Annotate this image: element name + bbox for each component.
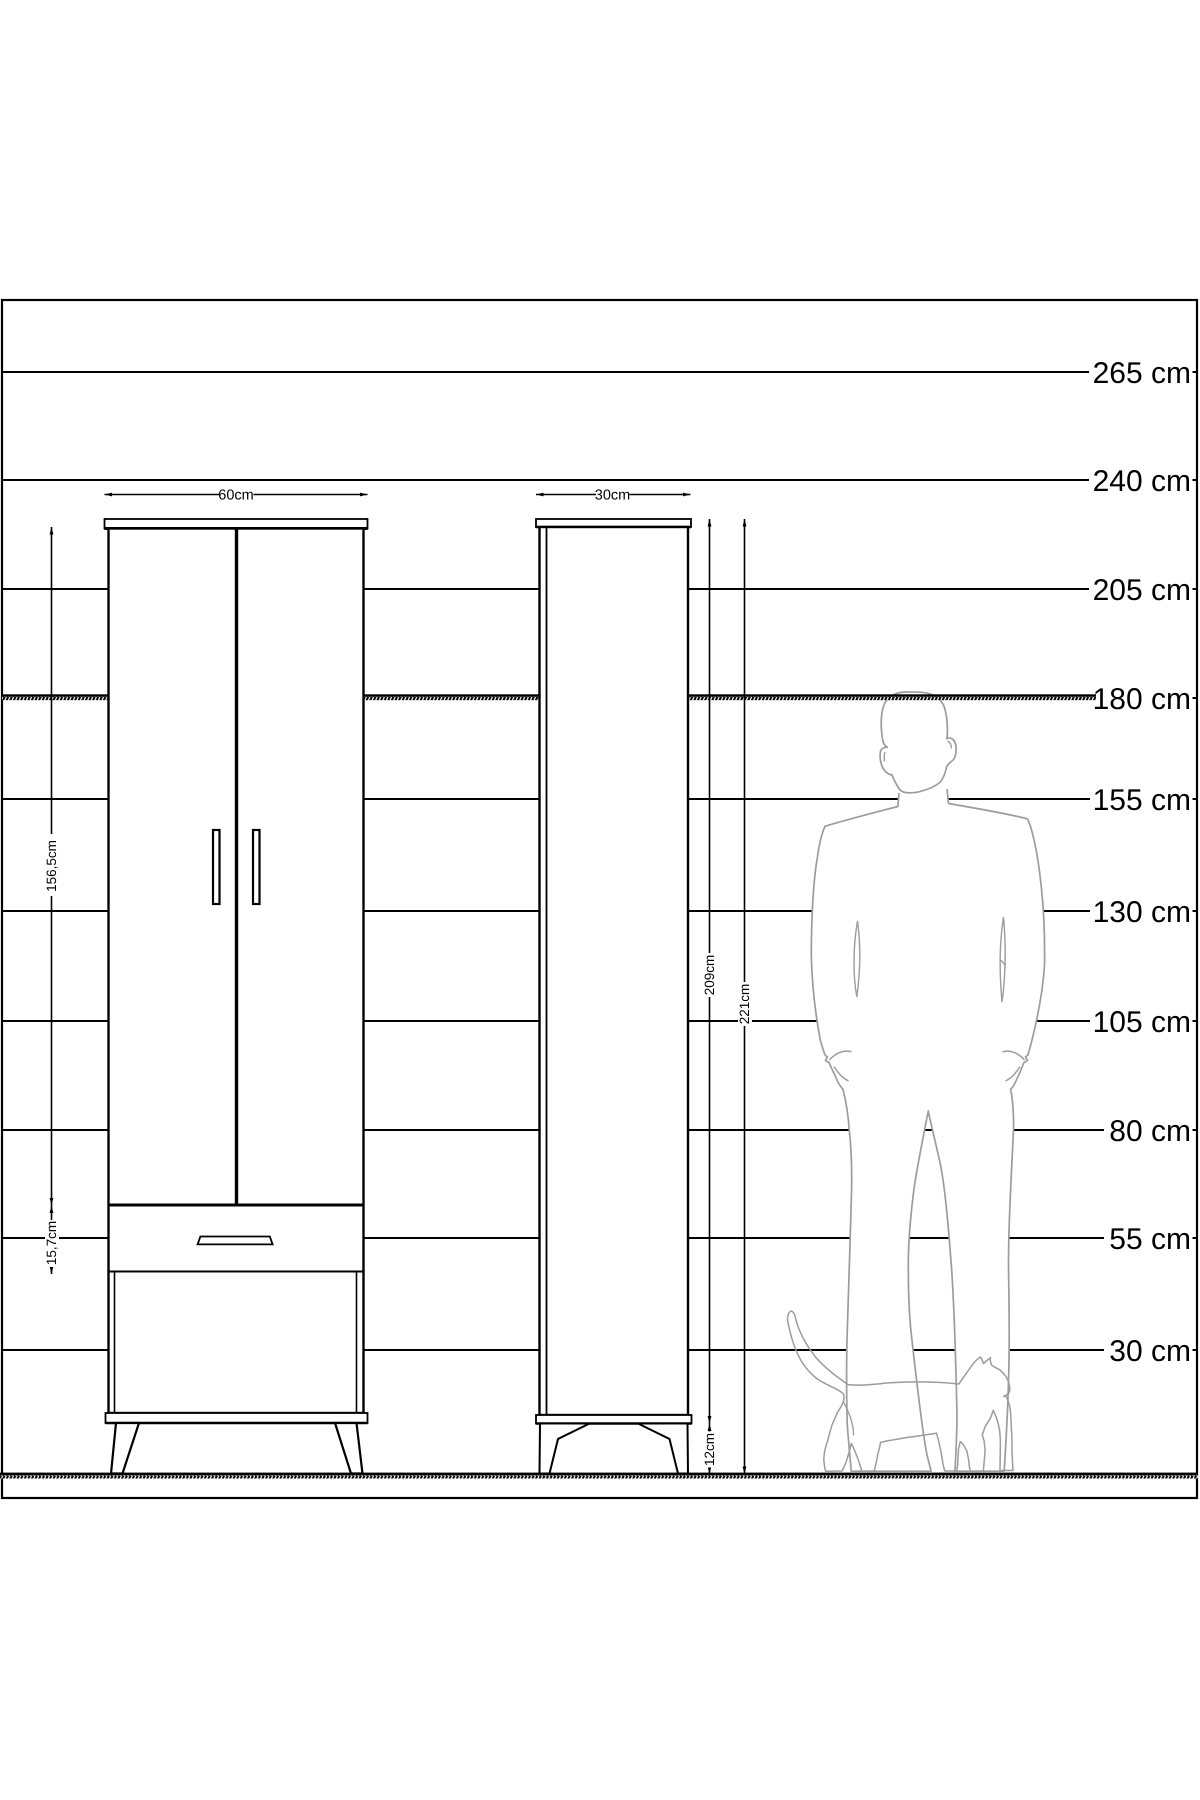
svg-text:30 cm: 30 cm [1109,1335,1191,1368]
svg-text:265 cm: 265 cm [1093,357,1191,390]
svg-text:105 cm: 105 cm [1093,1006,1191,1039]
svg-text:130 cm: 130 cm [1093,896,1191,929]
svg-text:221cm: 221cm [737,984,752,1025]
svg-text:80 cm: 80 cm [1109,1115,1191,1148]
svg-text:12cm: 12cm [702,1433,717,1466]
svg-text:30cm: 30cm [595,487,630,503]
svg-text:155 cm: 155 cm [1093,784,1191,817]
svg-text:55 cm: 55 cm [1109,1223,1191,1256]
svg-text:180 cm: 180 cm [1093,683,1191,716]
svg-text:209cm: 209cm [702,955,717,996]
svg-text:240 cm: 240 cm [1093,465,1191,498]
svg-text:15,7cm: 15,7cm [44,1221,59,1265]
svg-text:205 cm: 205 cm [1093,574,1191,607]
svg-text:156,5cm: 156,5cm [44,840,59,892]
svg-text:60cm: 60cm [218,487,253,503]
